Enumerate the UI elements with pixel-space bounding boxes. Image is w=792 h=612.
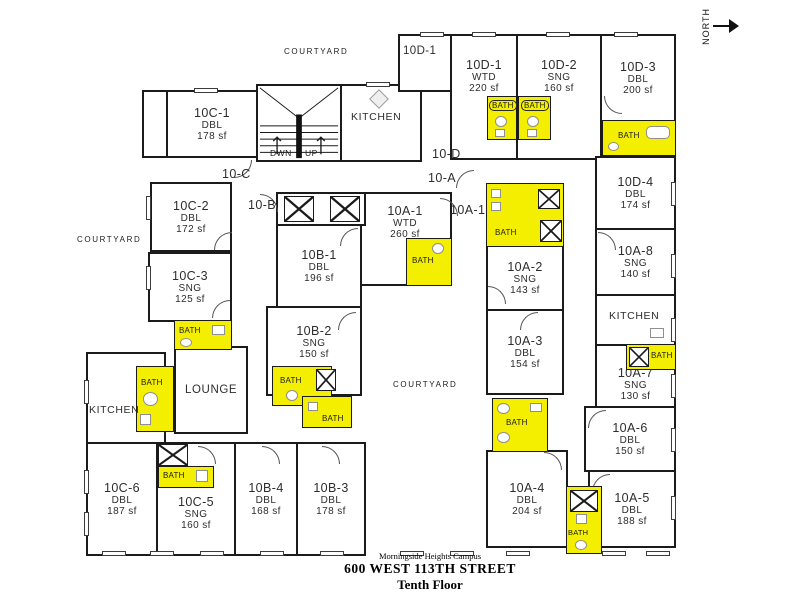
room-type: SNG	[296, 338, 331, 349]
room-label: 10A-7 SNG 130 sf	[618, 366, 653, 402]
room-area: 196 sf	[301, 273, 336, 284]
window	[671, 318, 676, 342]
room-label: 10C-2 DBL 172 sf	[173, 199, 209, 235]
window	[546, 32, 570, 37]
window	[420, 32, 444, 37]
room-area: 130 sf	[618, 391, 653, 402]
room-label: 10D-2 SNG 160 sf	[541, 58, 577, 94]
shower-stall	[629, 347, 649, 367]
corridor-label-10B: 10-B	[248, 198, 276, 212]
window	[200, 551, 224, 556]
window	[102, 551, 126, 556]
room-label: 10B-4 DBL 168 sf	[248, 481, 283, 517]
room-label: 10C-3 SNG 125 sf	[172, 269, 208, 305]
bath-label: BATH	[322, 414, 344, 423]
sink-fixture	[491, 202, 501, 211]
sink-fixture	[196, 470, 208, 482]
kitchen-fixture	[650, 328, 664, 338]
kitchen-top-label: KITCHEN	[351, 111, 401, 123]
room-type: WTD	[387, 218, 422, 229]
room-id: 10C-2	[173, 199, 209, 213]
room-id: 10C-1	[194, 106, 230, 120]
window	[146, 196, 151, 220]
street-address: 600 WEST 113TH STREET	[230, 561, 630, 577]
room-id: 10A-5	[614, 491, 649, 505]
bath-label: BATH	[179, 326, 201, 335]
corridor-label-10A: 10-A	[428, 171, 456, 185]
toilet-fixture	[527, 116, 539, 127]
title-block: Morningside Heights Campus 600 WEST 113T…	[230, 551, 630, 593]
window	[150, 551, 174, 556]
north-arrow: NORTH	[701, 8, 741, 45]
room-type: SNG	[178, 509, 214, 520]
bath-label: BATH	[651, 351, 673, 360]
room-type: DBL	[612, 435, 647, 446]
room-type: SNG	[541, 72, 577, 83]
room-area: 160 sf	[541, 83, 577, 94]
stairs-down-label: DWN	[270, 148, 292, 158]
bath-label: BATH	[280, 376, 302, 385]
sink-fixture	[308, 402, 318, 411]
room-type: DBL	[509, 495, 544, 506]
courtyard-top-label: COURTYARD	[284, 47, 348, 56]
room-type: DBL	[104, 495, 140, 506]
window	[646, 551, 670, 556]
campus-name: Morningside Heights Campus	[230, 551, 630, 561]
room-label: 10A-2 SNG 143 sf	[507, 260, 542, 296]
room-label: 10A-8 SNG 140 sf	[618, 244, 653, 280]
room-type: SNG	[172, 283, 208, 294]
room-area: 150 sf	[612, 446, 647, 457]
sink-fixture	[491, 189, 501, 198]
window	[671, 496, 676, 520]
bath-10B-2-b	[302, 396, 352, 428]
toilet-fixture	[286, 390, 298, 401]
room-type: DBL	[248, 495, 283, 506]
toilet-fixture	[497, 432, 510, 443]
room-type: DBL	[301, 262, 336, 273]
room-type: SNG	[618, 258, 653, 269]
room-label: 10D-4 DBL 174 sf	[617, 175, 653, 211]
room-10C-6: 10C-6 DBL 187 sf	[86, 442, 158, 556]
bath-label: BATH	[141, 378, 163, 387]
toilet-fixture	[495, 116, 507, 127]
shower-stall	[538, 189, 560, 209]
room-label: 10A-6 DBL 150 sf	[612, 421, 647, 457]
room-10D-4: 10D-4 DBL 174 sf	[595, 156, 676, 230]
window	[671, 254, 676, 278]
window	[614, 32, 638, 37]
sink-fixture	[608, 142, 619, 151]
window	[84, 512, 89, 536]
room-area: 188 sf	[614, 516, 649, 527]
room-area: 200 sf	[620, 85, 656, 96]
kitchen-right-label: KITCHEN	[609, 310, 659, 322]
room-id: 10D-1	[466, 58, 502, 72]
room-id: 10C-5	[178, 495, 214, 509]
room-area: 168 sf	[248, 506, 283, 517]
toilet-fixture	[180, 338, 192, 347]
shower-stall	[316, 369, 336, 391]
room-id: 10B-3	[313, 481, 348, 495]
room-type: SNG	[618, 380, 653, 391]
room-id: 10C-6	[104, 481, 140, 495]
room-label: 10D-3 DBL 200 sf	[620, 60, 656, 96]
window	[671, 374, 676, 398]
room-area: 187 sf	[104, 506, 140, 517]
bath-label: BATH	[489, 100, 517, 111]
room-label: 10A-3 DBL 154 sf	[507, 334, 542, 370]
room-id: 10D-2	[541, 58, 577, 72]
shower-stall	[570, 490, 598, 512]
bath-label: BATH	[521, 100, 549, 111]
sink-fixture	[575, 540, 587, 550]
room-area: 204 sf	[509, 506, 544, 517]
room-id: 10D-4	[617, 175, 653, 189]
window	[472, 32, 496, 37]
room-label: 10C-6 DBL 187 sf	[104, 481, 140, 517]
room-type: DBL	[173, 213, 209, 224]
room-area: 143 sf	[507, 285, 542, 296]
room-area: 140 sf	[618, 269, 653, 280]
room-label: 10B-1 DBL 196 sf	[301, 248, 336, 284]
room-id: 10A-8	[618, 244, 653, 258]
toilet-fixture	[143, 392, 158, 406]
sink-fixture	[140, 414, 151, 425]
room-label: 10A-5 DBL 188 sf	[614, 491, 649, 527]
room-type: DBL	[194, 120, 230, 131]
room-label: 10B-3 DBL 178 sf	[313, 481, 348, 517]
shower-stall	[540, 220, 562, 242]
tub-fixture	[646, 126, 670, 139]
room-id: 10A-3	[507, 334, 542, 348]
corridor-label-10A-1: 10A-1	[450, 203, 485, 217]
room-id: 10D-3	[620, 60, 656, 74]
window	[366, 82, 390, 87]
courtyard-center-label: COURTYARD	[393, 380, 457, 389]
bath-label: BATH	[568, 528, 588, 537]
room-id: 10A-4	[509, 481, 544, 495]
window	[671, 182, 676, 206]
room-label: 10C-5 SNG 160 sf	[178, 495, 214, 531]
kitchen-left-label: KITCHEN	[89, 404, 139, 416]
closet-column	[142, 90, 168, 158]
door-swing	[456, 170, 474, 188]
room-area: 172 sf	[173, 224, 209, 235]
room-area: 150 sf	[296, 349, 331, 360]
sink-fixture	[576, 514, 587, 524]
corridor-label-10D-1: 10D-1	[403, 45, 436, 57]
room-area: 154 sf	[507, 359, 542, 370]
room-label: 10D-1 WTD 220 sf	[466, 58, 502, 94]
room-10C-1: 10C-1 DBL 178 sf	[166, 90, 258, 158]
room-area: 174 sf	[617, 200, 653, 211]
bath-label: BATH	[163, 471, 185, 480]
north-label: NORTH	[701, 8, 711, 45]
sink-fixture	[527, 129, 537, 137]
stairwell	[256, 84, 342, 162]
toilet-fixture	[497, 403, 510, 414]
room-id: 10A-6	[612, 421, 647, 435]
room-area: 178 sf	[313, 506, 348, 517]
room-area: 220 sf	[466, 83, 502, 94]
lounge-label: LOUNGE	[185, 384, 237, 396]
bath-label: BATH	[412, 256, 434, 265]
room-type: DBL	[617, 189, 653, 200]
room-type: WTD	[466, 72, 502, 83]
elevator-cab	[330, 196, 360, 222]
courtyard-left-label: COURTYARD	[77, 235, 141, 244]
room-label: 10A-4 DBL 204 sf	[509, 481, 544, 517]
room-type: DBL	[614, 505, 649, 516]
room-area: 178 sf	[194, 131, 230, 142]
floor-name: Tenth Floor	[230, 577, 630, 593]
hall-10D-vestibule	[398, 34, 452, 92]
stairs-up-label: UP	[305, 148, 318, 158]
sink-fixture	[530, 403, 542, 412]
floor-plan: 10C-1 DBL 178 sf DWN UP KITCHEN 10D-1 10…	[0, 0, 792, 612]
elevator-cab	[284, 196, 314, 222]
room-label: 10C-1 DBL 178 sf	[194, 106, 230, 142]
room-label: 10A-1 WTD 260 sf	[387, 204, 422, 240]
window	[671, 428, 676, 452]
room-area: 160 sf	[178, 520, 214, 531]
shower-stall	[158, 444, 188, 466]
room-type: DBL	[313, 495, 348, 506]
room-type: SNG	[507, 274, 542, 285]
room-id: 10B-2	[296, 324, 331, 338]
bath-label: BATH	[618, 131, 640, 140]
room-id: 10A-2	[507, 260, 542, 274]
room-id: 10A-1	[387, 204, 422, 218]
sink-fixture	[212, 325, 225, 335]
room-id: 10B-1	[301, 248, 336, 262]
room-label: 10B-2 SNG 150 sf	[296, 324, 331, 360]
room-type: DBL	[620, 74, 656, 85]
window	[146, 266, 151, 290]
window	[84, 470, 89, 494]
north-arrow-icon	[711, 12, 741, 40]
room-area: 125 sf	[172, 294, 208, 305]
room-id: 10C-3	[172, 269, 208, 283]
corridor-label-10D: 10-D	[432, 147, 461, 161]
bath-label: BATH	[506, 418, 528, 427]
corridor-label-10C: 10-C	[222, 167, 251, 181]
bath-label: BATH	[495, 228, 517, 237]
toilet-fixture	[432, 243, 444, 254]
room-type: DBL	[507, 348, 542, 359]
sink-fixture	[495, 129, 505, 137]
room-id: 10B-4	[248, 481, 283, 495]
window	[84, 380, 89, 404]
window	[194, 88, 218, 93]
